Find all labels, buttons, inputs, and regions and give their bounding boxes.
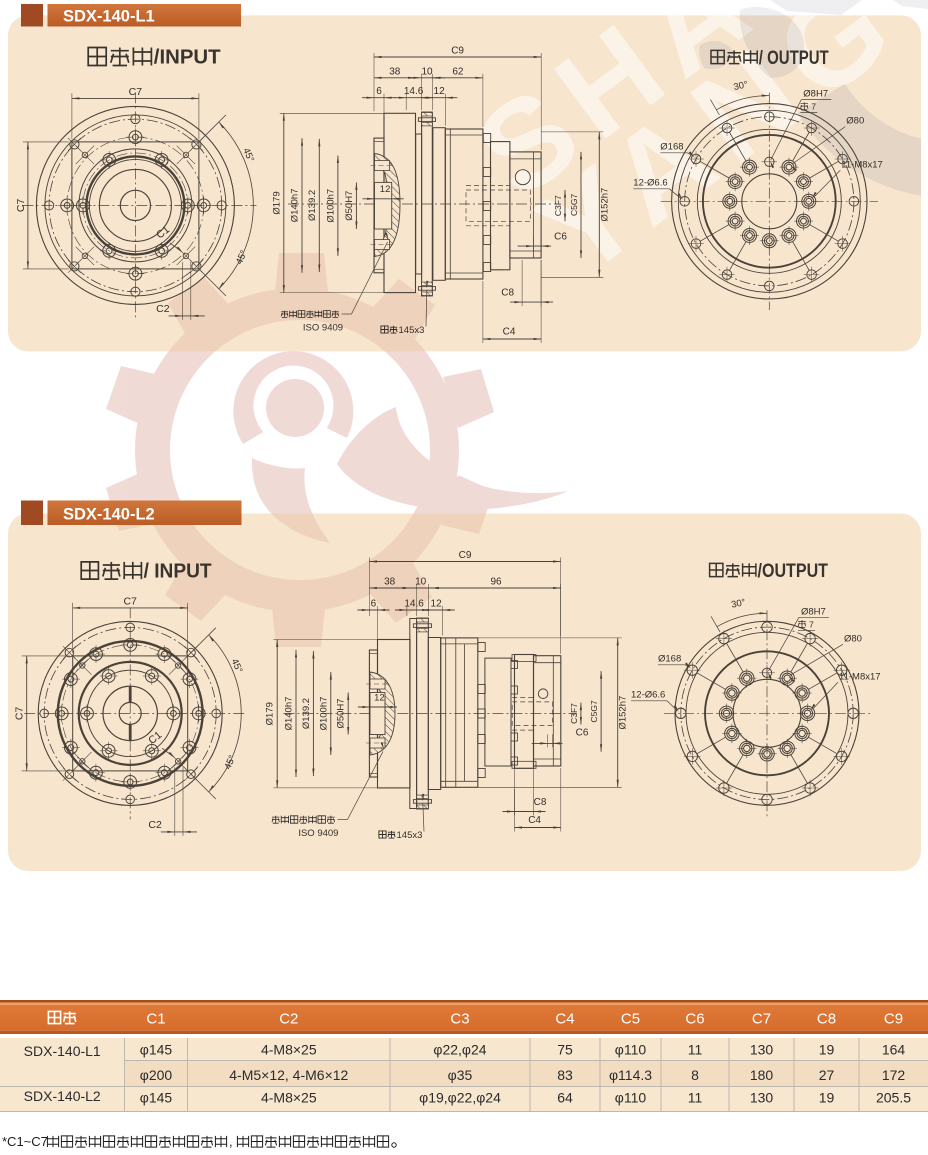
- svg-text:/INPUT: /INPUT: [154, 47, 221, 69]
- svg-text:14.6: 14.6: [404, 86, 424, 97]
- svg-text:C6: C6: [576, 728, 589, 739]
- svg-text:145x3: 145x3: [397, 830, 423, 841]
- svg-text:C2: C2: [279, 1011, 298, 1028]
- svg-text:φ145: φ145: [140, 1042, 173, 1058]
- svg-text:C6: C6: [554, 232, 567, 243]
- svg-text:Ø80: Ø80: [844, 633, 862, 644]
- svg-text:12: 12: [431, 599, 443, 610]
- svg-text:12: 12: [434, 86, 446, 97]
- svg-text:Ø50H7: Ø50H7: [336, 698, 347, 728]
- svg-text:Ø152h7: Ø152h7: [599, 188, 610, 222]
- svg-text:C9: C9: [451, 46, 464, 57]
- svg-text:*C1~C7: *C1~C7: [2, 1134, 48, 1149]
- svg-text:Ø50H7: Ø50H7: [344, 191, 355, 221]
- svg-text:11-M8x17: 11-M8x17: [841, 159, 883, 170]
- svg-text:Ø100h7: Ø100h7: [318, 697, 329, 731]
- svg-text:Ø152h7: Ø152h7: [618, 696, 629, 730]
- svg-text:Ø140h7: Ø140h7: [290, 188, 301, 222]
- svg-text:C8: C8: [501, 288, 514, 299]
- svg-text:φ35: φ35: [448, 1067, 473, 1083]
- svg-text:C7: C7: [14, 707, 26, 721]
- svg-text:6: 6: [371, 599, 377, 610]
- svg-text:4-M8×25: 4-M8×25: [261, 1090, 317, 1106]
- svg-text:φ114.3: φ114.3: [609, 1067, 652, 1083]
- svg-text:φ145: φ145: [140, 1090, 173, 1106]
- svg-text:14.6: 14.6: [404, 599, 424, 610]
- svg-text:C4: C4: [528, 815, 541, 826]
- svg-text:φ110: φ110: [615, 1090, 647, 1106]
- svg-text:C8: C8: [817, 1011, 836, 1028]
- svg-text:12: 12: [374, 693, 385, 704]
- svg-text:C7: C7: [15, 199, 27, 213]
- svg-text:11: 11: [688, 1042, 703, 1058]
- svg-text:180: 180: [750, 1067, 774, 1083]
- svg-text:C5: C5: [621, 1011, 640, 1028]
- svg-text:SDX-140-L1: SDX-140-L1: [63, 8, 155, 26]
- svg-text:7: 7: [809, 619, 814, 629]
- svg-text:φ200: φ200: [140, 1067, 173, 1083]
- svg-text:Ø168: Ø168: [660, 141, 683, 152]
- svg-text:C8: C8: [534, 797, 547, 808]
- svg-text:C4: C4: [503, 327, 516, 338]
- svg-text:C7: C7: [123, 595, 137, 607]
- svg-text:Ø140h7: Ø140h7: [284, 697, 295, 731]
- svg-text:205.5: 205.5: [876, 1090, 911, 1106]
- svg-text:C3F7: C3F7: [569, 703, 579, 724]
- svg-text:38: 38: [384, 577, 396, 588]
- svg-text:19: 19: [819, 1090, 835, 1106]
- svg-text:φ22,φ24: φ22,φ24: [433, 1042, 486, 1058]
- svg-text:64: 64: [557, 1090, 573, 1106]
- svg-text:C7: C7: [752, 1011, 771, 1028]
- svg-text:Ø8H7: Ø8H7: [803, 89, 828, 100]
- svg-text:SDX-140-L2: SDX-140-L2: [63, 506, 155, 524]
- svg-text:83: 83: [557, 1067, 573, 1083]
- svg-text:SDX-140-L1: SDX-140-L1: [24, 1043, 101, 1059]
- svg-text:ISO 9409: ISO 9409: [298, 828, 338, 839]
- svg-text:130: 130: [750, 1042, 774, 1058]
- svg-text:96: 96: [490, 577, 502, 588]
- svg-text:C9: C9: [884, 1011, 903, 1028]
- svg-text:172: 172: [882, 1067, 906, 1083]
- svg-text:Ø139.2: Ø139.2: [301, 698, 312, 729]
- svg-text:75: 75: [557, 1042, 573, 1058]
- svg-text:C9: C9: [459, 550, 472, 561]
- svg-text:C5G7: C5G7: [569, 194, 579, 216]
- svg-text:12: 12: [380, 184, 391, 195]
- svg-text:130: 130: [750, 1090, 774, 1106]
- svg-text:62: 62: [452, 66, 464, 77]
- svg-text:6: 6: [376, 86, 382, 97]
- svg-text:10: 10: [421, 66, 433, 77]
- svg-text:C3F7: C3F7: [553, 195, 563, 216]
- svg-text:/ OUTPUT: / OUTPUT: [759, 47, 829, 69]
- svg-text:4-M8×25: 4-M8×25: [261, 1042, 317, 1058]
- svg-text:11-M8x17: 11-M8x17: [839, 671, 881, 682]
- svg-text:C2: C2: [148, 819, 162, 831]
- svg-text:Ø80: Ø80: [846, 116, 864, 127]
- svg-text:C5G7: C5G7: [589, 700, 599, 722]
- svg-text:φ19,φ22,φ24: φ19,φ22,φ24: [419, 1090, 501, 1106]
- svg-text:C3: C3: [450, 1011, 469, 1028]
- svg-text:Ø168: Ø168: [658, 653, 681, 664]
- svg-text:12-Ø6.6: 12-Ø6.6: [631, 689, 665, 700]
- svg-text:C6: C6: [685, 1011, 704, 1028]
- svg-text:27: 27: [819, 1067, 835, 1083]
- svg-text:SDX-140-L2: SDX-140-L2: [24, 1088, 101, 1104]
- svg-text:Ø179: Ø179: [265, 702, 276, 725]
- svg-text:C2: C2: [156, 303, 170, 315]
- svg-text:Ø100h7: Ø100h7: [325, 189, 336, 223]
- svg-text:C7: C7: [129, 86, 143, 98]
- svg-text:11: 11: [688, 1090, 703, 1106]
- svg-text:19: 19: [819, 1042, 835, 1058]
- svg-text:Ø8H7: Ø8H7: [801, 606, 826, 617]
- svg-text:ISO 9409: ISO 9409: [303, 323, 343, 334]
- svg-text:φ110: φ110: [615, 1042, 647, 1058]
- svg-text:/OUTPUT: /OUTPUT: [758, 560, 829, 582]
- svg-text:38: 38: [389, 66, 401, 77]
- svg-text:7: 7: [811, 102, 816, 112]
- svg-text:Ø139.2: Ø139.2: [307, 190, 318, 221]
- svg-text:164: 164: [882, 1042, 906, 1058]
- svg-text:/ INPUT: / INPUT: [144, 561, 212, 583]
- svg-text:8: 8: [691, 1067, 699, 1083]
- svg-text:145x3: 145x3: [399, 325, 425, 336]
- svg-text:4-M5×12, 4-M6×12: 4-M5×12, 4-M6×12: [229, 1067, 348, 1083]
- svg-text:C4: C4: [555, 1011, 574, 1028]
- svg-text:C1: C1: [146, 1011, 165, 1028]
- svg-text:,: ,: [229, 1134, 233, 1149]
- svg-text:12-Ø6.6: 12-Ø6.6: [633, 177, 667, 188]
- svg-text:Ø179: Ø179: [271, 191, 282, 214]
